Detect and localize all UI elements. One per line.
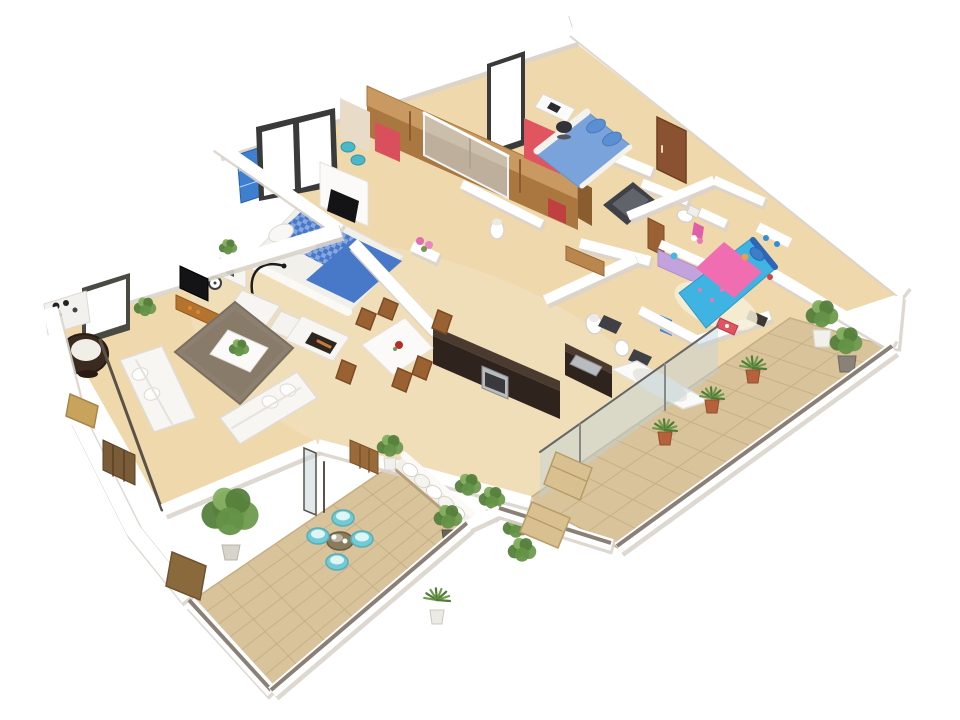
flower-pink-1	[416, 237, 424, 245]
planter-box-1	[66, 394, 98, 428]
spiky-plant-1-pot	[746, 370, 760, 383]
teal-chair-2-top	[336, 512, 350, 521]
open-glass-door	[304, 448, 316, 515]
balcony-bush-2-leaf5	[838, 338, 854, 354]
kid-doll	[742, 254, 749, 261]
wall-clock-dot	[214, 282, 217, 285]
teal-chair-3-top	[355, 533, 369, 542]
papasan-base	[78, 370, 98, 378]
office-chair	[556, 121, 572, 133]
arc-lamp-head	[282, 264, 287, 269]
teal-chair-4-top	[330, 556, 344, 565]
sideboard-bowl-3	[73, 308, 78, 313]
bush-south-leaf5	[515, 548, 529, 562]
spiky-plant-2-blade7	[712, 398, 724, 399]
balcony-bush-pot-1	[813, 330, 831, 347]
kid-toy-2	[697, 238, 703, 244]
kid-bed-dot-2	[720, 288, 724, 292]
palm-south-blade7	[437, 600, 450, 601]
spiky-plant-2-pot	[705, 400, 719, 413]
flower-leaf	[421, 246, 427, 252]
tree-pot	[222, 545, 240, 560]
interior-palm-leaf5	[462, 483, 475, 496]
papasan-cushion	[71, 339, 101, 361]
kid-bed-dot-1	[710, 298, 714, 302]
office-chair-base	[557, 135, 571, 140]
living-plant-leaf5	[140, 305, 151, 316]
palm-south-pot	[430, 610, 444, 624]
kid-bin-2	[774, 241, 780, 247]
floorplan-3d-render	[0, 0, 960, 720]
leafy-tree-leaf5	[216, 507, 244, 535]
wc-toilet-lid	[492, 219, 502, 226]
teal-stool-1	[341, 142, 355, 152]
table-dish-2	[343, 539, 348, 544]
scene-layers	[44, 28, 907, 695]
tv-books-2	[196, 310, 200, 314]
table-rose-leaf	[393, 347, 397, 351]
spiky-plant-1-blade7	[753, 368, 766, 369]
kid-bed-frame-red	[767, 274, 773, 280]
table-dish-1	[332, 535, 337, 540]
shelf-plant-leaf5	[224, 245, 233, 254]
bath-toilet-lid	[589, 314, 599, 322]
terrace-bush-n-leaf5	[384, 444, 397, 457]
teal-chair-1-top	[311, 530, 325, 539]
terrace-bush-3-leaf5	[441, 515, 455, 529]
kid-toy-1	[691, 235, 697, 241]
toy-car-dot	[725, 324, 729, 328]
guest-window-glass	[491, 57, 521, 150]
spiky-plant-3-pot	[658, 432, 672, 445]
apartment-3d-floorplan	[0, 0, 960, 720]
terrace-bush-n-pot	[384, 458, 396, 470]
balcony-bush-1-leaf5	[814, 311, 830, 327]
kid-toy-3	[671, 253, 678, 260]
kid-bed-dot-3	[698, 288, 702, 292]
planter-box-2	[166, 552, 206, 600]
spiky-plant-3-blade7	[665, 430, 677, 431]
kid-bin-1	[763, 235, 769, 241]
coffee-table-plant-leaf5	[234, 346, 244, 356]
tv-books-1	[188, 306, 192, 310]
teal-stool-2	[351, 155, 365, 165]
sideboard-bowl-2	[63, 300, 69, 306]
